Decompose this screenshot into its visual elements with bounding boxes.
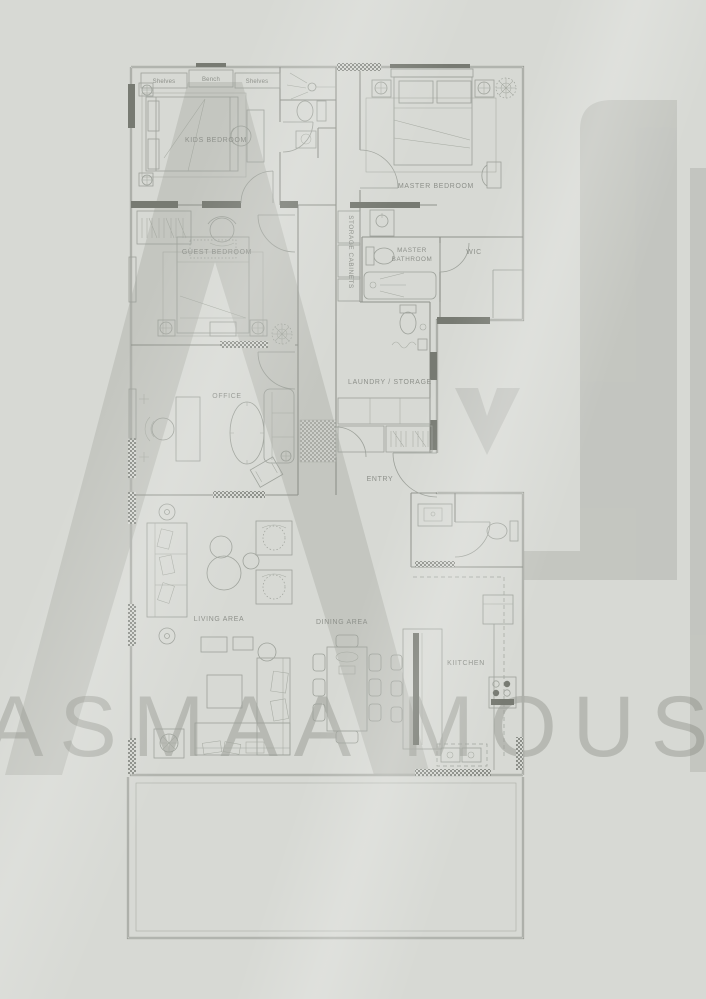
side-table [243,553,259,569]
room-master-bathroom: MASTER BATHROOM [364,210,436,299]
stove [489,677,516,708]
plant-master [496,78,516,98]
shelves-right: Shelves [235,73,280,88]
washer-hookup [392,339,427,350]
guest-bench-boxes [210,322,236,336]
powder-toilet [487,521,518,541]
shelves-left-label: Shelves [153,79,176,85]
shelves-left: Shelves [141,73,187,88]
kids-bathroom-door [283,122,313,152]
room-kitchen: KIITCHEN [391,577,516,770]
sectional-sofa [195,658,290,755]
room-wic: WIC [466,249,482,256]
room-office: OFFICE [129,389,294,487]
armchair-top [256,521,292,555]
laundry-cabinets [338,398,430,452]
solid-wall-segments [128,63,490,450]
bench-label: Bench [202,77,220,83]
kids-bedroom-label: KIDS BEDROOM [185,137,247,144]
guest-closet [137,211,191,244]
wic-label: WIC [466,249,482,256]
guest-chair [208,217,236,246]
shelves-right-label: Shelves [246,79,269,85]
powder-sink [418,504,452,526]
floor-plan-page: ASMAA MOUSA [0,0,706,999]
room-guest-bedroom: GUEST BEDROOM [129,211,292,344]
bar-stools [391,655,402,722]
sink [296,131,316,148]
kids-desk [231,110,264,162]
master-bedroom-door [360,150,398,188]
entry-label: ENTRY [367,476,394,483]
room-dining: DINING AREA [313,619,381,743]
living-sofa-left [147,523,187,617]
terrace [128,777,523,938]
room-master-bedroom: MASTER BEDROOM [366,69,523,318]
master-wardrobe [493,270,523,318]
bench: Bench [189,70,233,87]
living-area-label: LIVING AREA [194,616,245,623]
room-kids-bedroom: Shelves Bench Shelves [139,70,280,186]
shoe-cabinet [300,420,336,462]
guest-nightstand-right [250,320,267,336]
room-powder [418,504,518,541]
plant-living [154,729,184,758]
laundry-storage-label: LAUNDRY / STORAGE [348,379,432,386]
wic-door [440,243,469,272]
guest-bedroom-door [258,215,295,252]
master-bathroom-label-1: MASTER [397,247,427,254]
office-oval-table [230,402,264,464]
square-table [207,675,242,708]
hatched-wall-segments [128,63,523,776]
master-bed [391,69,473,165]
office-desk [145,397,200,461]
room-living: LIVING AREA [147,504,292,758]
room-entry: ENTRY [367,476,394,483]
guest-bedroom-label: GUEST BEDROOM [182,249,252,256]
room-laundry-storage: LAUNDRY / STORAGE [338,305,432,452]
bathtub [364,272,436,299]
coffee-tables [207,536,241,590]
office-lamp [281,451,291,461]
master-chair [482,162,501,188]
office-label: OFFICE [212,393,241,400]
master-bathroom-label-2: BATHROOM [392,256,433,263]
room-kids-bathroom [287,73,336,148]
dining-table [327,647,367,731]
armchair-bottom [256,570,292,604]
storage-cabinets-label: STORAGE CABINETS [347,215,354,289]
kitchen-sink [437,744,487,766]
master-rug [366,98,496,172]
toilet-laundry [400,305,426,334]
dining-chairs [313,635,381,743]
kitchen-label: KIITCHEN [447,660,485,667]
laundry-door [336,427,366,457]
master-nightstand-left [372,80,391,97]
fridge [483,595,513,624]
vanity-sink [370,210,394,236]
master-nightstand-right [475,80,494,97]
ottomans [201,637,253,652]
coat-closet [386,426,432,452]
plant-guest [272,324,292,344]
speaker-top [159,504,175,520]
speaker-bottom [159,628,175,644]
kitchen-island [403,629,442,749]
toilet [297,101,326,121]
shower [287,73,336,99]
kids-nightstand-lamp-bottom [139,173,153,186]
powder-room-door [455,522,490,557]
master-bedroom-label: MASTER BEDROOM [398,183,474,190]
dining-area-label: DINING AREA [316,619,368,626]
toilet-master [366,247,394,265]
floor-plan-drawing: Shelves Bench Shelves [0,0,706,999]
guest-nightstand-left [158,320,175,336]
office-door [258,352,295,389]
entry-door [393,453,437,497]
